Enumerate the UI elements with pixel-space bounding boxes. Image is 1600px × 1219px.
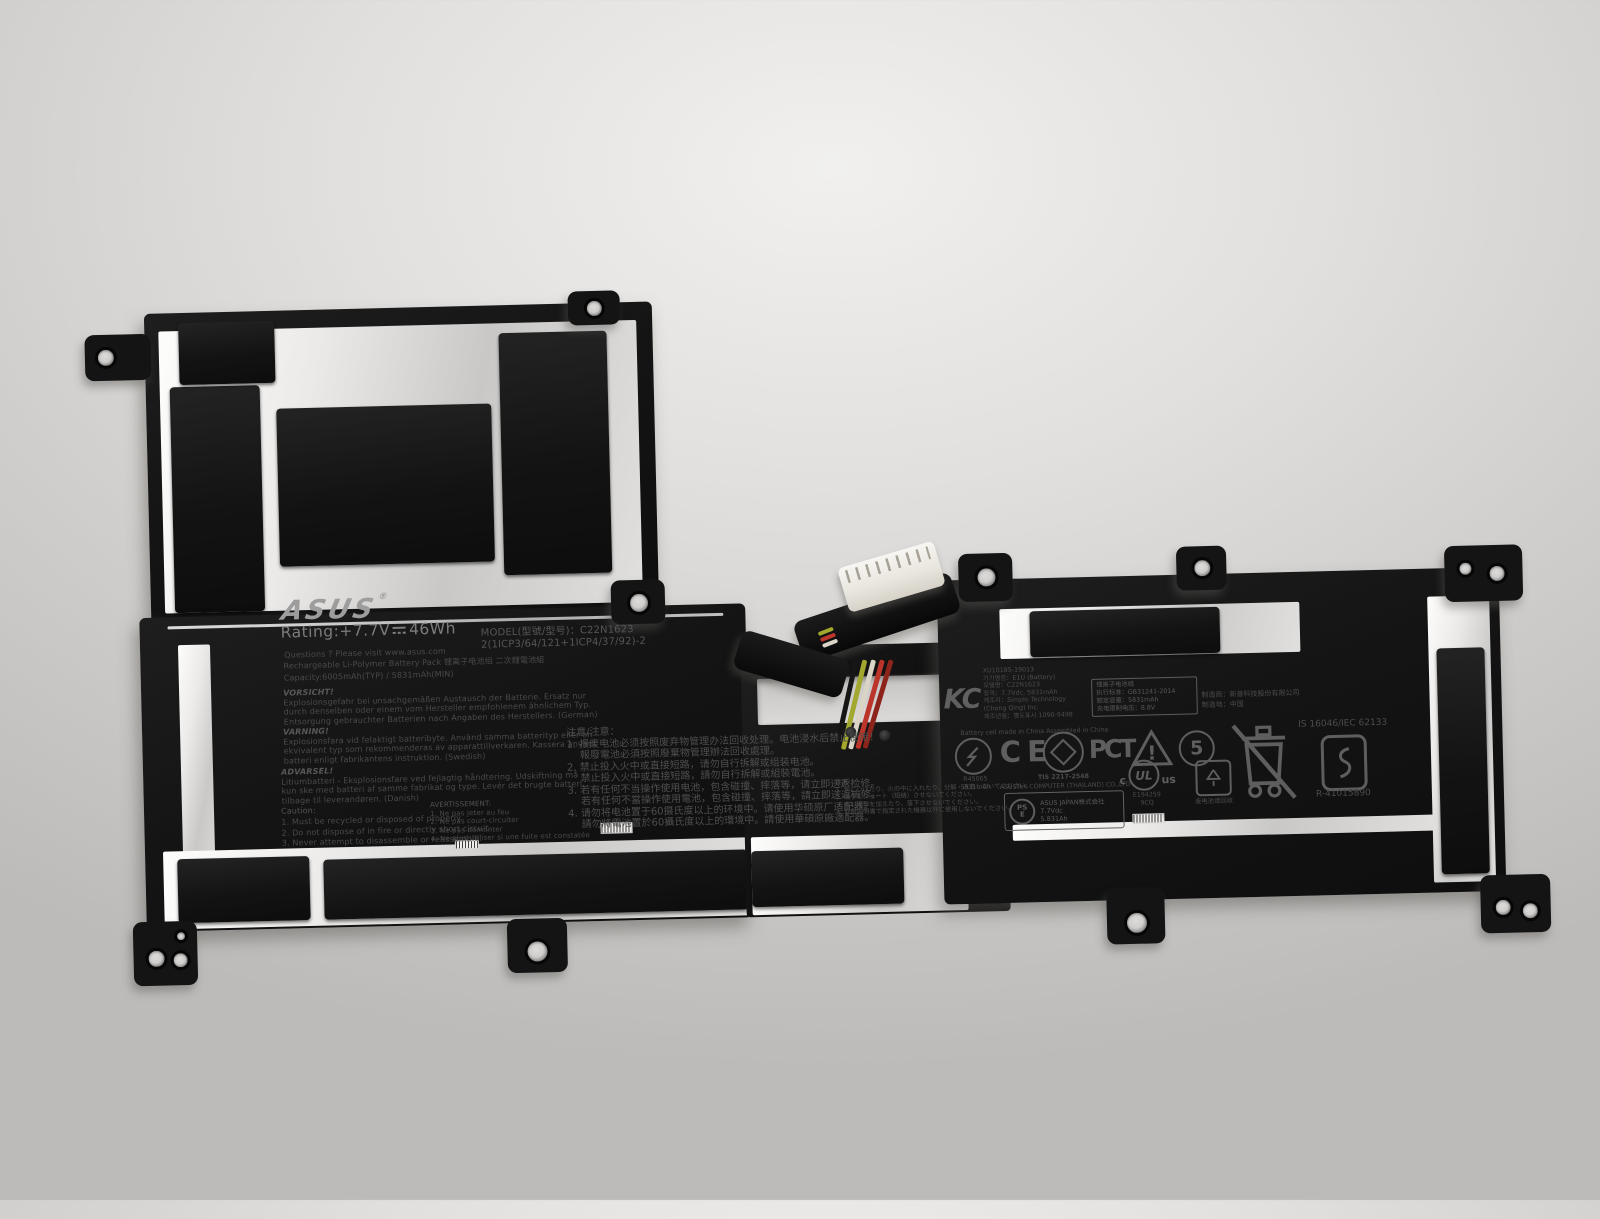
ul-code: 9CQ — [1120, 799, 1174, 808]
pse-company: ASUS JAPAN株式会社 — [1040, 798, 1105, 808]
rating-prefix: Rating:+7.7V — [280, 621, 390, 642]
pse-diamond-icon: PS E — [1009, 798, 1036, 825]
bis-reg-number: R-41015890 — [1316, 790, 1371, 799]
ul-us: us — [1161, 773, 1176, 786]
spec-box: 锂离子电池组 执行标准：GB31241-2014 额定容量：5831mAh 充电… — [1091, 676, 1198, 717]
adhesive-pad — [323, 849, 748, 919]
kc-mark-icon: KC — [943, 684, 981, 716]
dc-symbol-icon — [392, 626, 407, 635]
warning-german: VORSICHT! Explosionsgefahr bei unsachgem… — [283, 681, 598, 727]
ul-c: c — [1119, 774, 1126, 787]
battery-recycle-text: 废电池请回收 — [1192, 797, 1236, 806]
adhesive-pad — [177, 856, 311, 923]
adhesive-pad — [498, 331, 612, 576]
bsmi-reg-number: R45065 5831mAh — [955, 775, 995, 791]
adhesive-pad — [178, 321, 275, 385]
ul-letters: UL — [1135, 768, 1153, 782]
ul-file-number: E194259 9CQ — [1120, 791, 1174, 808]
adhesive-pad — [1029, 607, 1220, 658]
efup-number: 5 — [1190, 737, 1204, 759]
battery-photo: ASUS® Rating:+7.7V46Wh Questions ? Pleas… — [0, 0, 1600, 1219]
model-block: MODEL(型號/型号)：C22N1623 2(1ICP3/64/121+1IC… — [481, 624, 647, 652]
adhesive-pad — [276, 403, 495, 566]
micro-label — [1132, 813, 1164, 824]
bsmi-capacity: 5831mAh — [956, 783, 996, 792]
caution-french: AVERTISSEMENT: 1. Ne pas jeter au feu 2.… — [430, 797, 590, 844]
pse-amph: 5.831Ah — [1040, 814, 1105, 824]
rating-suffix: 46Wh — [409, 619, 456, 638]
kc-info-block: XU10185-19013 기기명칭：E1U (Battery) 모델명：C22… — [983, 665, 1073, 720]
chinese-notice-block: 注意/注意： 1. 报废电池必须按照废弃物管理办法回收处理。电池浸水后禁止使用！… — [566, 720, 882, 831]
warning-swedish: VARNING! Explosionsfara vid felaktigt ba… — [283, 720, 597, 766]
spec-line: 充电限制电压：8.8V — [1097, 703, 1193, 713]
bis-mark-icon — [1320, 734, 1367, 791]
pse-text: ASUS JAPAN株式会社 7.7Vdc 5.831Ah — [1040, 798, 1105, 824]
adhesive-pad — [1436, 647, 1490, 874]
pse-mark-block: PS E ASUS JAPAN株式会社 7.7Vdc 5.831Ah — [1004, 790, 1125, 831]
pse-e: E — [1020, 812, 1025, 819]
connector-pins — [845, 546, 931, 583]
adhesive-pad — [751, 848, 904, 908]
weee-bin-icon — [1230, 718, 1298, 806]
battery-recycle-icon — [1195, 760, 1232, 797]
adhesive-pad — [170, 385, 265, 613]
gost-pct-mark-icon: PCТ — [1088, 734, 1133, 764]
mounting-tab — [1480, 874, 1551, 934]
bis-standard-text: IS 16046/IEC 62133 — [1298, 720, 1387, 730]
tis-number: TIS 2217-2548 — [1037, 773, 1089, 782]
manufacturer-block: 制造商：新普科技股份有限公司 制造地：中国 — [1201, 688, 1299, 710]
mounting-tab — [1444, 544, 1523, 602]
rating-line: Rating:+7.7V46Wh — [281, 624, 456, 638]
